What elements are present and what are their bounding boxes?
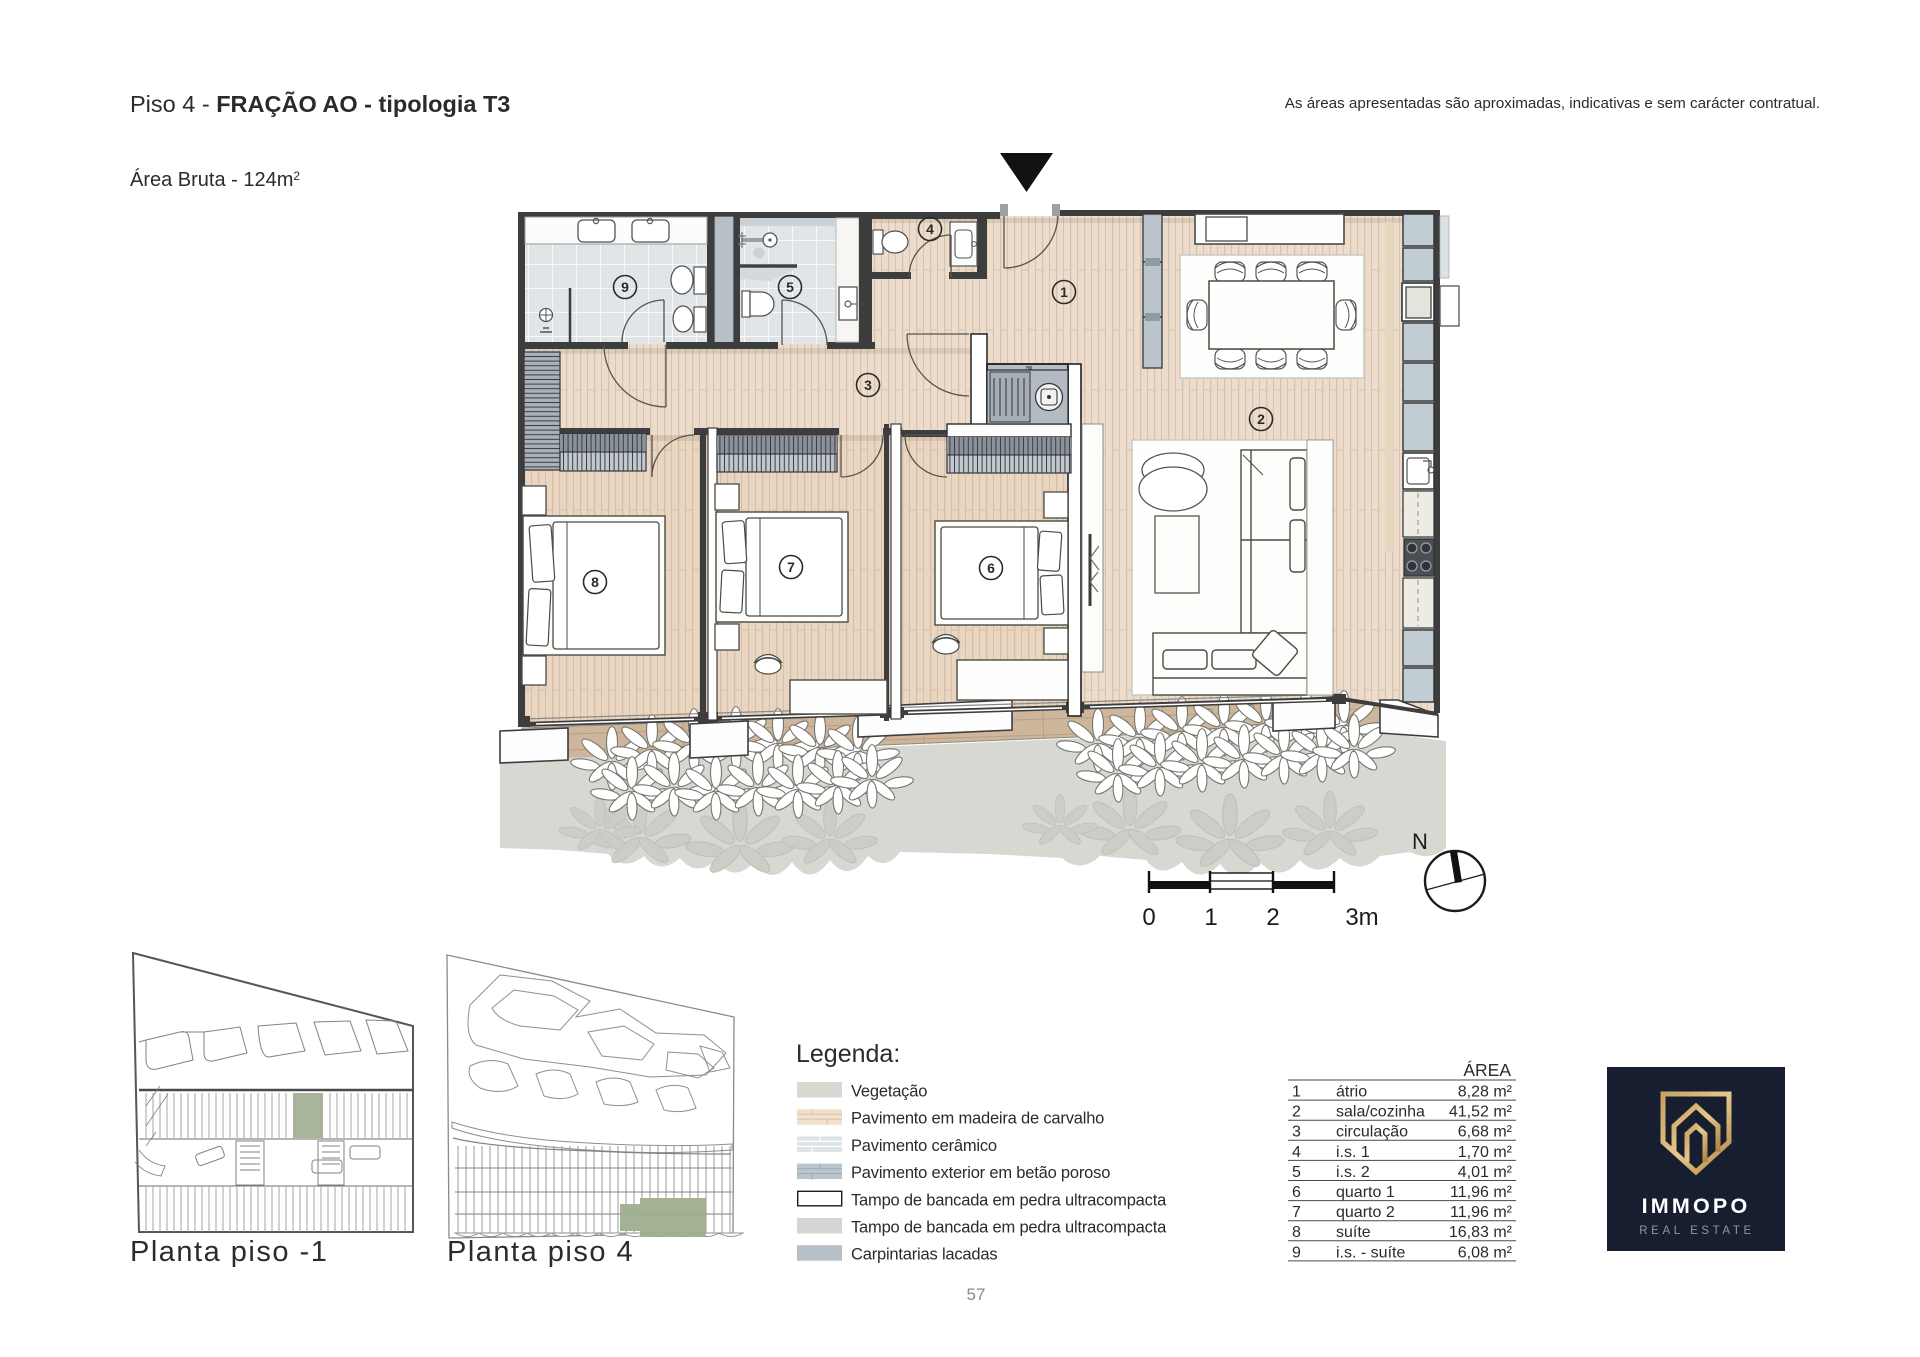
svg-text:4,01 m²: 4,01 m² (1458, 1164, 1513, 1181)
svg-text:7: 7 (1292, 1204, 1301, 1221)
svg-text:Pavimento exterior em betão po: Pavimento exterior em betão poroso (851, 1164, 1110, 1182)
svg-text:8,28 m²: 8,28 m² (1458, 1084, 1513, 1101)
svg-text:2: 2 (1292, 1104, 1301, 1121)
svg-text:2: 2 (1257, 411, 1265, 427)
svg-text:1,70 m²: 1,70 m² (1458, 1144, 1513, 1161)
svg-text:IMMOPO: IMMOPO (1642, 1194, 1751, 1218)
svg-text:N: N (1412, 829, 1428, 854)
svg-text:5: 5 (1292, 1164, 1301, 1181)
svg-text:6,68 m²: 6,68 m² (1458, 1124, 1513, 1141)
svg-text:8: 8 (591, 574, 599, 590)
svg-text:Tampo de bancada em pedra ultr: Tampo de bancada em pedra ultracompacta (851, 1191, 1167, 1209)
svg-text:1: 1 (1060, 284, 1068, 300)
svg-text:0: 0 (1142, 904, 1155, 931)
svg-text:i.s. 2: i.s. 2 (1336, 1164, 1370, 1181)
svg-text:4: 4 (1292, 1144, 1301, 1161)
svg-text:3: 3 (864, 377, 872, 393)
svg-text:Piso 4 - FRAÇÃO AO - tipologia: Piso 4 - FRAÇÃO AO - tipologia T3 (130, 90, 510, 117)
svg-text:Planta piso -1: Planta piso -1 (130, 1236, 328, 1268)
svg-text:Tampo de bancada em pedra ultr: Tampo de bancada em pedra ultracompacta (851, 1219, 1167, 1237)
svg-text:Pavimento em madeira de carval: Pavimento em madeira de carvalho (851, 1110, 1104, 1128)
svg-text:i.s. - suíte: i.s. - suíte (1336, 1244, 1405, 1261)
svg-text:1: 1 (1292, 1084, 1301, 1101)
svg-text:6,08 m²: 6,08 m² (1458, 1244, 1513, 1261)
svg-text:REAL ESTATE: REAL ESTATE (1639, 1225, 1754, 1237)
svg-text:suíte: suíte (1336, 1224, 1371, 1241)
svg-text:Legenda:: Legenda: (796, 1040, 900, 1068)
svg-text:quarto 1: quarto 1 (1336, 1184, 1395, 1201)
svg-text:Carpintarias lacadas: Carpintarias lacadas (851, 1246, 997, 1264)
svg-text:57: 57 (967, 1285, 986, 1304)
svg-text:Pavimento cerâmico: Pavimento cerâmico (851, 1137, 997, 1155)
svg-text:3m: 3m (1345, 904, 1378, 931)
svg-text:ÁREA: ÁREA (1463, 1060, 1511, 1080)
svg-text:sala/cozinha: sala/cozinha (1336, 1104, 1425, 1121)
svg-text:Vegetação: Vegetação (851, 1083, 927, 1101)
svg-text:6: 6 (1292, 1184, 1301, 1201)
svg-text:5: 5 (786, 279, 794, 295)
svg-text:7: 7 (787, 559, 795, 575)
svg-text:6: 6 (987, 560, 995, 576)
svg-text:9: 9 (621, 279, 629, 295)
svg-text:As áreas apresentadas são apro: As áreas apresentadas são aproximadas, i… (1285, 95, 1820, 112)
svg-text:Área Bruta - 124m2: Área Bruta - 124m2 (130, 168, 300, 191)
svg-text:16,83 m²: 16,83 m² (1449, 1224, 1513, 1241)
svg-text:circulação: circulação (1336, 1124, 1408, 1141)
svg-text:2: 2 (1266, 904, 1279, 931)
svg-text:9: 9 (1292, 1244, 1301, 1261)
svg-text:41,52 m²: 41,52 m² (1449, 1104, 1513, 1121)
svg-text:3: 3 (1292, 1124, 1301, 1141)
svg-text:8: 8 (1292, 1224, 1301, 1241)
svg-text:átrio: átrio (1336, 1084, 1367, 1101)
svg-text:4: 4 (926, 221, 934, 237)
svg-text:quarto 2: quarto 2 (1336, 1204, 1395, 1221)
svg-text:11,96 m²: 11,96 m² (1450, 1184, 1513, 1201)
svg-text:11,96 m²: 11,96 m² (1450, 1204, 1513, 1221)
svg-text:Planta piso 4: Planta piso 4 (447, 1236, 634, 1268)
svg-text:1: 1 (1204, 904, 1217, 931)
svg-text:i.s. 1: i.s. 1 (1336, 1144, 1370, 1161)
